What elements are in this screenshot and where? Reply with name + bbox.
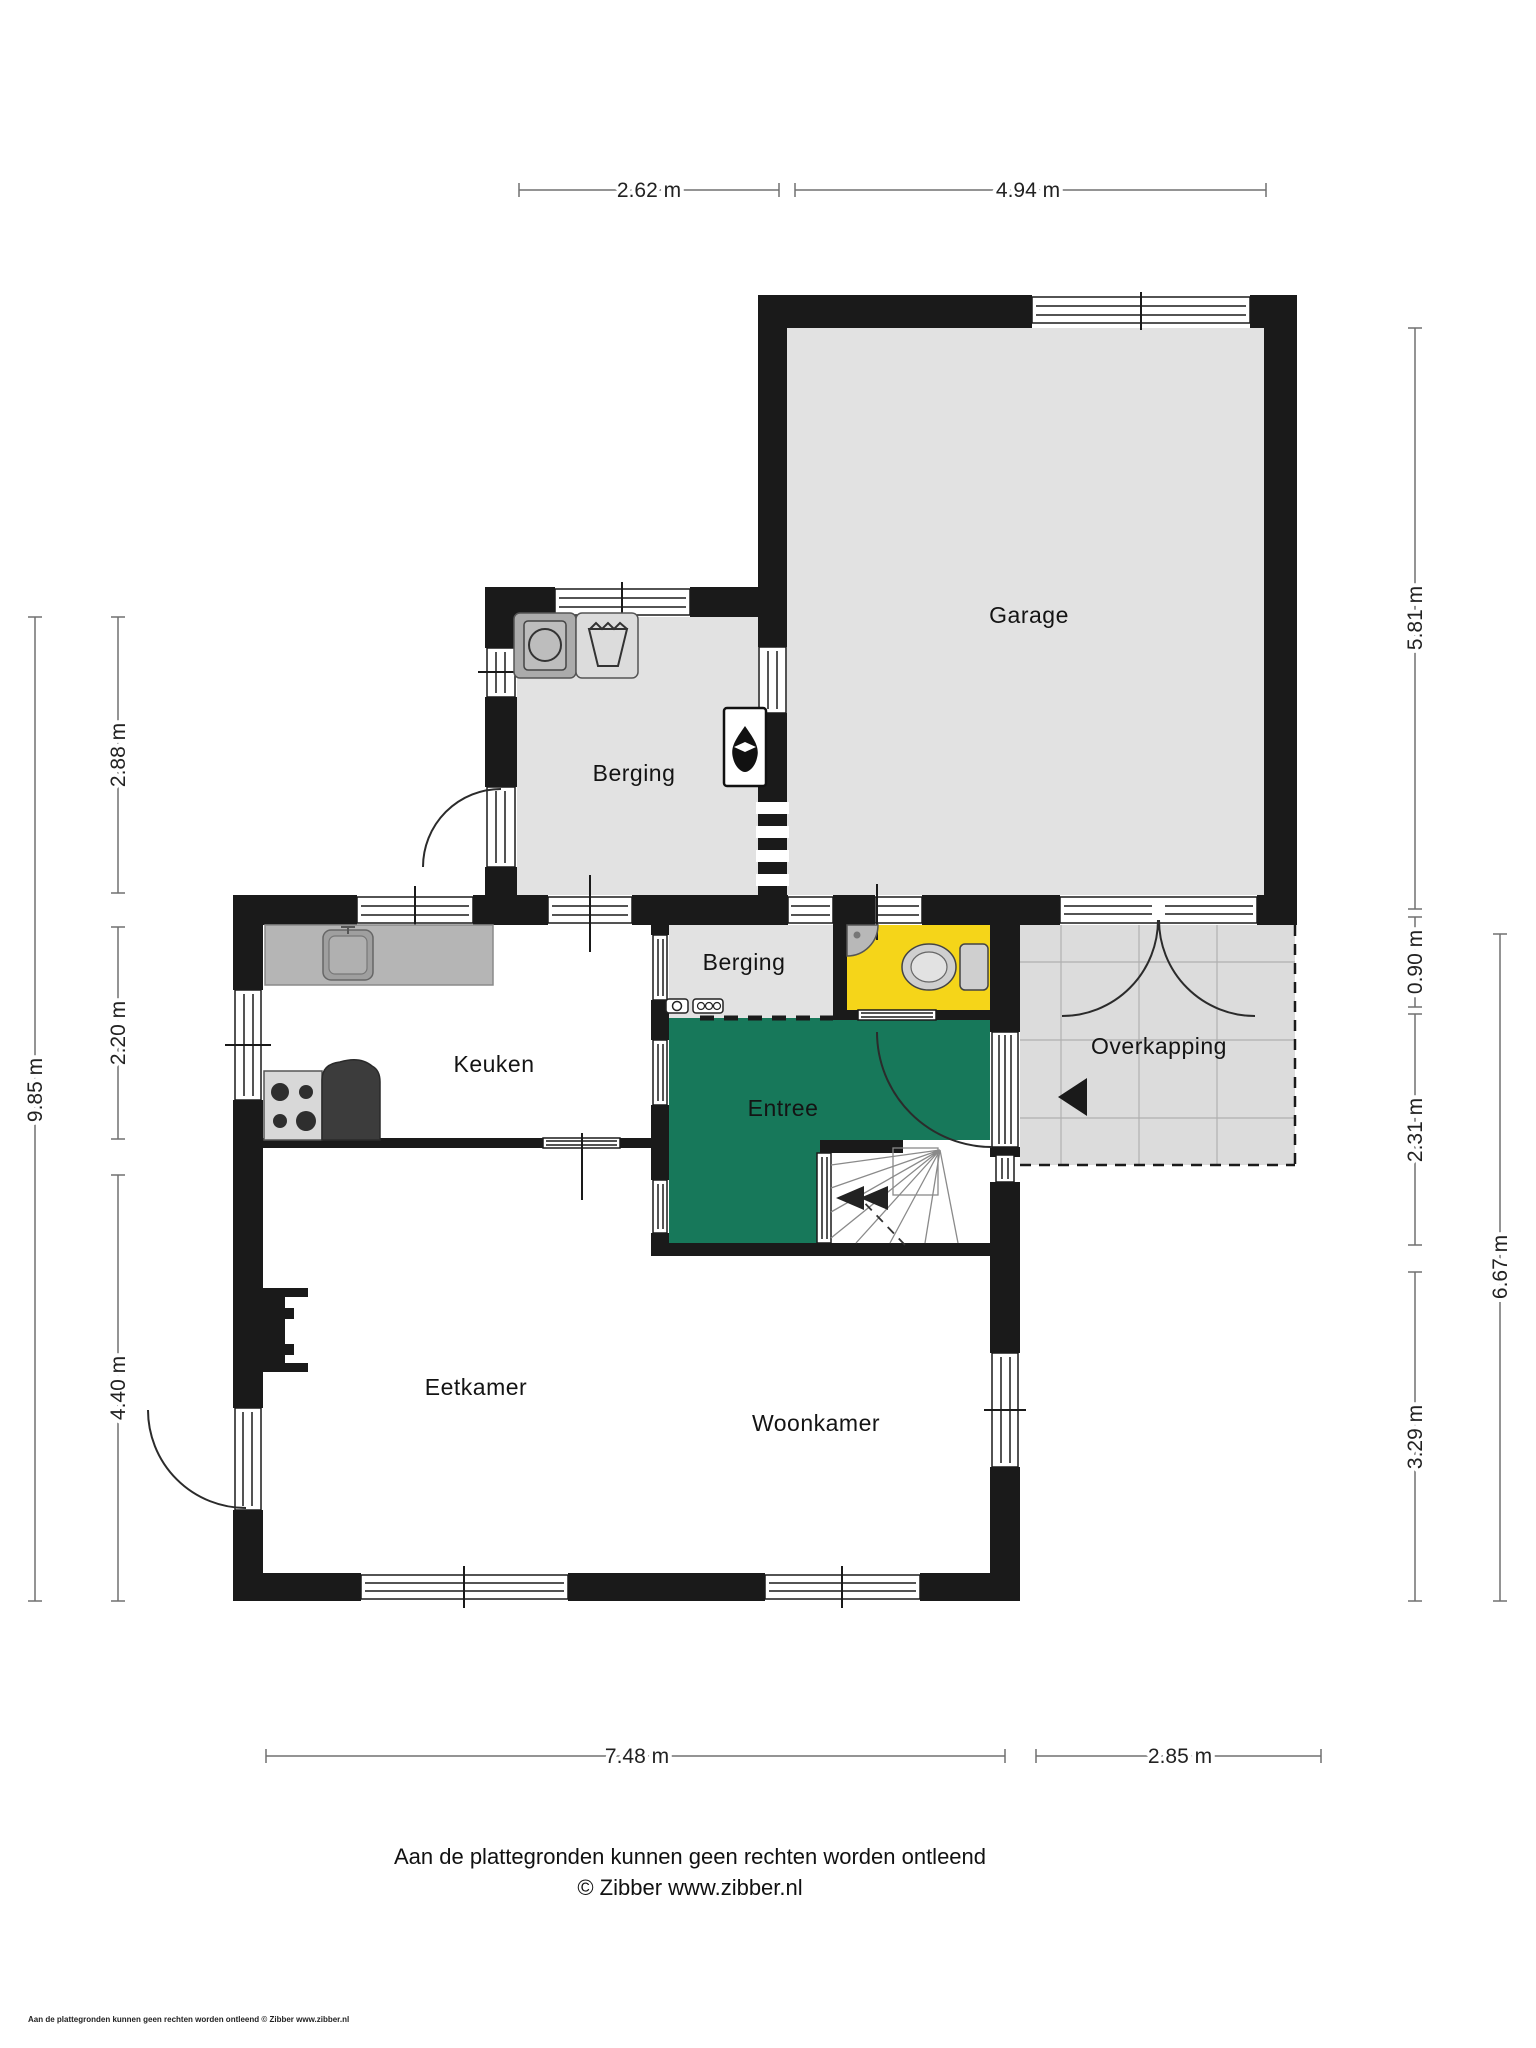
window — [361, 1566, 568, 1608]
dimension-right-outer: 6.67 m — [1489, 934, 1512, 1601]
wall — [758, 617, 787, 647]
wall — [485, 587, 517, 648]
dimension-label: 3.29 m — [1404, 1405, 1427, 1469]
wall — [620, 1138, 653, 1148]
wall — [833, 1010, 858, 1020]
dimension-label: 2.31 m — [1404, 1098, 1427, 1162]
garage-label: Garage — [989, 602, 1069, 628]
window — [788, 897, 833, 923]
kitchen-sink-icon — [323, 926, 373, 980]
wall — [651, 925, 669, 935]
washing-machine-icon — [514, 613, 576, 678]
dimension-label: 4.40 m — [107, 1356, 130, 1420]
dimension-label: 6.67 m — [1489, 1235, 1512, 1299]
wall — [233, 895, 263, 990]
interior-door — [653, 935, 667, 1000]
dimension-label: 4.94 m — [996, 179, 1060, 202]
wall — [820, 1140, 903, 1153]
wall — [632, 895, 788, 925]
dimension-label: 9.85 m — [24, 1058, 47, 1122]
wall — [651, 1243, 993, 1256]
dimension-label: 2.85 m — [1148, 1745, 1212, 1768]
wall — [1257, 895, 1297, 925]
interior-door — [653, 1040, 667, 1105]
wall — [651, 1233, 669, 1243]
wall — [651, 1105, 669, 1180]
eetkamer-label: Eetkamer — [425, 1374, 527, 1400]
chimney — [263, 1288, 308, 1372]
wall — [990, 1467, 1020, 1601]
dimension-bottom: 7.48 m 2.85 m — [266, 1745, 1321, 1768]
boiler-flame-icon — [724, 708, 766, 786]
eetkamer-door — [148, 1408, 261, 1510]
window — [984, 1353, 1026, 1467]
footer-disclaimer: Aan de plattegronden kunnen geen rechten… — [394, 1844, 986, 1869]
utility-meters-icon — [666, 999, 723, 1013]
dimension-label: 5.81 m — [1404, 586, 1427, 650]
berging-klein-label: Berging — [703, 949, 786, 975]
wall — [233, 1573, 361, 1601]
wall — [833, 895, 875, 925]
kitchen-counter — [265, 925, 493, 985]
window — [1032, 292, 1250, 330]
wall — [1264, 295, 1297, 925]
wall — [568, 1573, 765, 1601]
entree-label: Entree — [748, 1095, 819, 1121]
passage-opening — [543, 1133, 620, 1200]
window — [759, 647, 786, 713]
floorplan-canvas: Garage Berging Berging Keuken Entree Ove… — [0, 0, 1536, 2048]
dimension-left-inner: 2.88 m 2.20 m 4.40 m — [107, 617, 130, 1601]
woonkamer-label: Woonkamer — [752, 1410, 880, 1436]
wall — [690, 587, 787, 617]
dimension-label: 0.90 m — [1404, 930, 1427, 994]
dimension-label: 2.62 m — [617, 179, 681, 202]
door-swing-arc — [148, 1410, 246, 1508]
dimension-left-outer: 9.85 m — [24, 617, 47, 1601]
wall — [485, 697, 517, 787]
wall — [990, 895, 1020, 1032]
stove-icon — [264, 1060, 380, 1140]
window — [765, 1566, 920, 1608]
toilet-icon — [902, 944, 988, 990]
berging-label: Berging — [593, 760, 676, 786]
dimension-label: 7.48 m — [605, 1745, 669, 1768]
wall — [990, 1182, 1020, 1353]
dimension-label: 2.88 m — [107, 723, 130, 787]
stairs-door — [817, 1153, 831, 1243]
wall — [485, 867, 517, 895]
wall — [758, 295, 787, 617]
wall — [473, 895, 548, 925]
wall — [758, 295, 1032, 328]
entree-eetkamer-door — [653, 1180, 667, 1233]
dimension-top: 2.62 m 4.94 m — [519, 179, 1266, 202]
corner-note: Aan de plattegronden kunnen geen rechten… — [28, 2015, 349, 2024]
dimension-right-inner: 5.81 m 0.90 m 2.31 m 3.29 m — [1404, 328, 1427, 1601]
wall — [936, 1010, 990, 1020]
footer-credit: © Zibber www.zibber.nl — [577, 1875, 802, 1900]
berging-door — [423, 787, 515, 867]
keuken-label: Keuken — [453, 1051, 534, 1077]
overkapping-label: Overkapping — [1091, 1033, 1227, 1059]
laundry-tub-icon — [576, 613, 638, 678]
dimension-label: 2.20 m — [107, 1001, 130, 1065]
toilet-door-opening — [858, 1010, 936, 1020]
wall — [233, 1100, 263, 1408]
footer: Aan de plattegronden kunnen geen rechten… — [394, 1844, 986, 1900]
window — [996, 1155, 1014, 1182]
wall — [833, 925, 847, 1010]
